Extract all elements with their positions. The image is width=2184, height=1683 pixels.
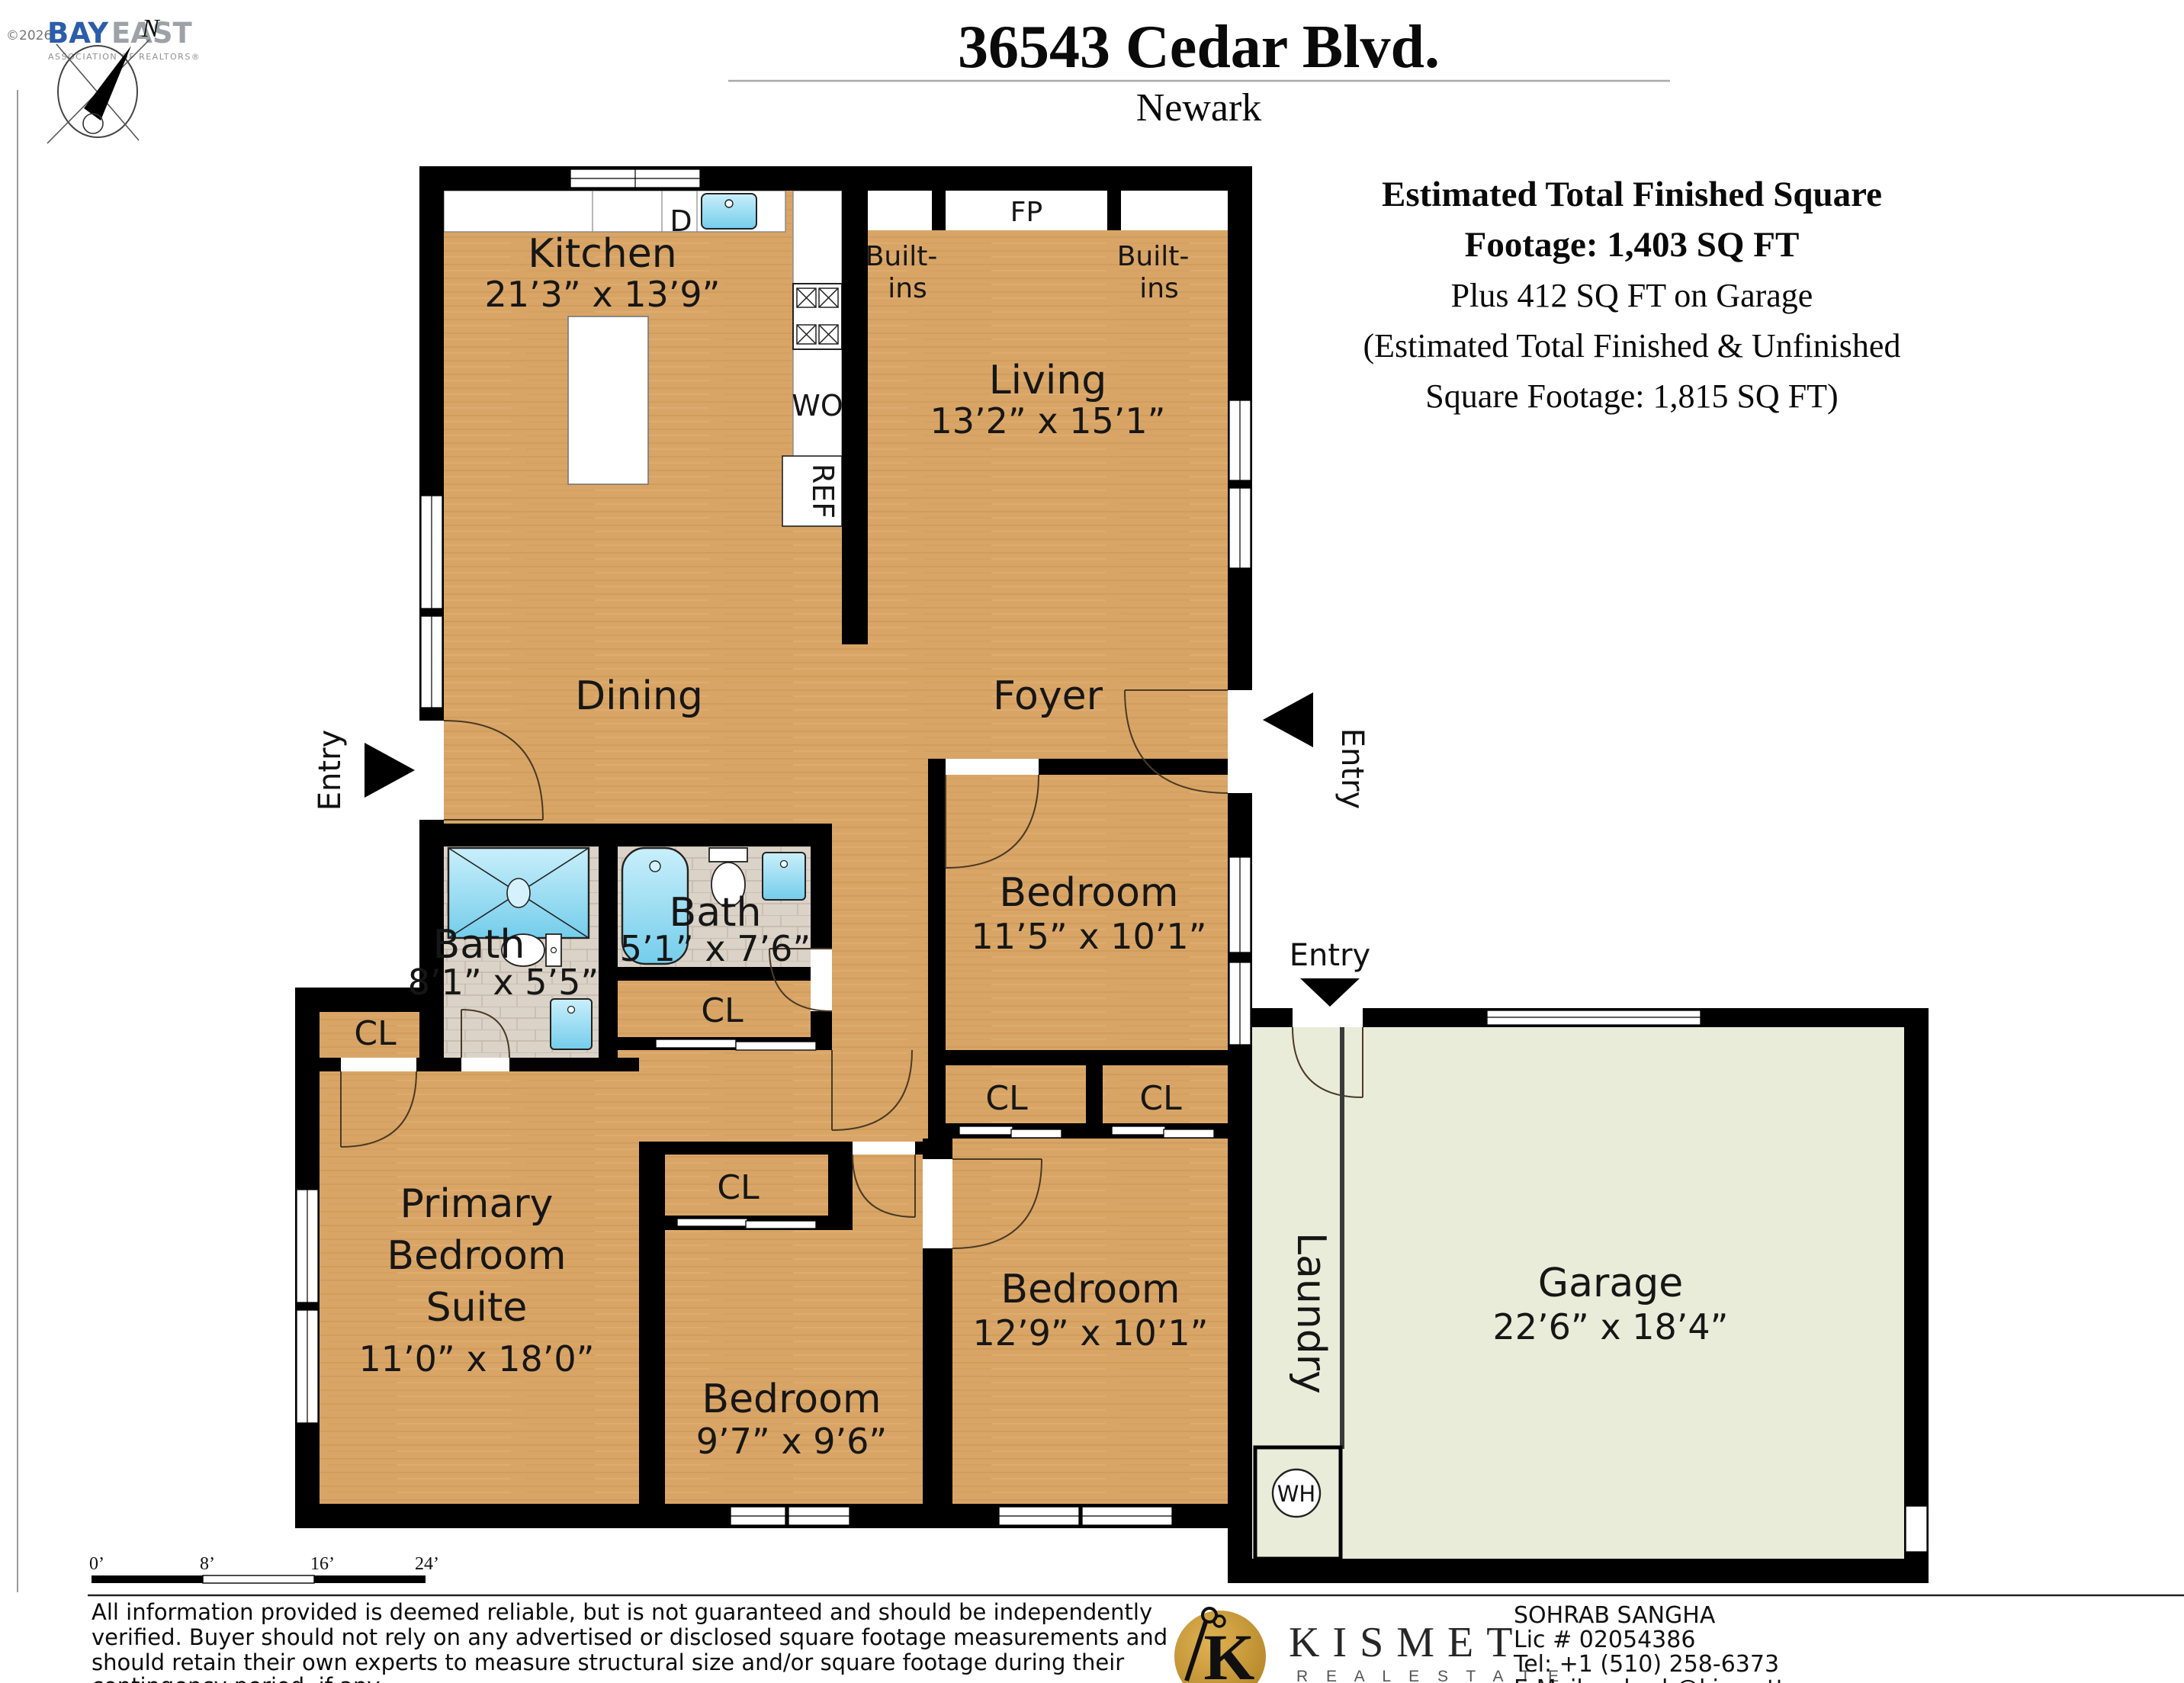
dishwasher-label: D <box>670 204 692 238</box>
kismet-brand-name: KISMET <box>1289 1619 1525 1666</box>
kitchen-dims: 21’3” x 13’9” <box>485 274 721 315</box>
wall-oven-label: WO <box>792 389 843 422</box>
scale-tick-24: 24’ <box>415 1554 439 1574</box>
builtins-left-line2: ins <box>888 273 927 304</box>
page-title: 36543 Cedar Blvd. <box>958 14 1440 81</box>
garage-dims: 22’6” x 18’4” <box>1493 1306 1729 1347</box>
closet-label-bedroom3-right: CL <box>1139 1079 1182 1118</box>
agent-phone: Tel: +1 (510) 258-6373 <box>1513 1651 1779 1678</box>
agent-contact: SOHRAB SANGHA Lic # 02054386 Tel: +1 (51… <box>1513 1602 1891 1683</box>
primary-bath-label: Bath <box>433 922 525 968</box>
sink-icon-primary-bath <box>551 999 592 1049</box>
closet-label-bedroom3-left: CL <box>985 1079 1028 1118</box>
primary-bath-dims: 8’1” x 5’5” <box>408 962 599 1003</box>
stove-icon <box>793 284 842 349</box>
scale-tick-8: 8’ <box>200 1554 215 1574</box>
hall-bath-dims: 5’1” x 7’6” <box>620 928 811 969</box>
summary-line-4: (Estimated Total Finished & Unfinished <box>1363 327 1901 365</box>
builtins-left-line1: Built- <box>866 241 938 272</box>
primary-suite-label-1: Primary <box>400 1181 554 1227</box>
agent-name: SOHRAB SANGHA <box>1514 1602 1716 1629</box>
summary-line-1: Estimated Total Finished Square <box>1382 175 1882 214</box>
bedroom2-label: Bedroom <box>702 1376 881 1422</box>
closet-label-bedroom2: CL <box>717 1168 760 1207</box>
garage-label: Garage <box>1538 1261 1683 1306</box>
title-block: 36543 Cedar Blvd. Newark <box>728 14 1670 130</box>
primary-suite-label-2: Bedroom <box>387 1233 566 1279</box>
kitchen-island <box>568 316 648 484</box>
floorplan-page: ©2026 BAY EAST ASSOCIATION OF REALTORS® … <box>0 0 2184 1683</box>
summary-line-3: Plus 412 SQ FT on Garage <box>1451 277 1813 314</box>
page-subtitle-city: Newark <box>1136 86 1262 130</box>
disclaimer-line-2: verified. Buyer should not rely on any a… <box>92 1624 1167 1650</box>
builtin-niche-right <box>1121 191 1228 230</box>
disclaimer-line-1: All information provided is deemed relia… <box>92 1599 1152 1625</box>
scale-tick-0: 0’ <box>89 1554 104 1574</box>
dining-label: Dining <box>575 673 703 719</box>
refrigerator-label: REF <box>806 464 840 519</box>
agent-email: E-Mail: sohrab@kismetteam.com <box>1514 1675 1891 1683</box>
builtins-right-line1: Built- <box>1117 241 1190 272</box>
kitchen-label: Kitchen <box>528 231 676 277</box>
foyer-label: Foyer <box>993 673 1103 719</box>
bedroom3-label: Bedroom <box>1000 1267 1180 1312</box>
laundry-divider-wall <box>1340 1027 1344 1449</box>
closet-label-hall: CL <box>701 991 744 1030</box>
entry-label-foyer: Entry <box>1334 728 1370 809</box>
disclaimer-line-3: should retain their own experts to measu… <box>92 1649 1124 1675</box>
sink-icon-hall-bath <box>763 853 805 900</box>
primary-suite-dims: 11’0” x 18’0” <box>359 1338 595 1379</box>
disclaimer-line-4: contingency period, if any. <box>92 1673 384 1683</box>
entry-label-left: Entry <box>313 730 348 811</box>
builtins-right-line2: ins <box>1139 273 1179 304</box>
scale-tick-16: 16’ <box>310 1554 335 1574</box>
kismet-logo: K KISMET R E A L E S T A T E <box>1174 1608 1566 1683</box>
bedroom2-dims: 9’7” x 9’6” <box>696 1421 887 1462</box>
copyright-text: ©2026 <box>6 28 52 43</box>
kitchen-sink-faucet <box>725 200 733 207</box>
builtin-niche-left <box>868 191 932 230</box>
fireplace-label: FP <box>1010 197 1042 228</box>
primary-suite-label-3: Suite <box>426 1285 528 1331</box>
bayeast-logo: ©2026 BAY EAST ASSOCIATION OF REALTORS® <box>6 17 201 62</box>
entry-arrow-foyer-icon <box>1263 692 1313 747</box>
entry-arrow-garage-icon <box>1300 978 1360 1007</box>
entry-label-garage: Entry <box>1290 938 1370 973</box>
bedroom3-dims: 12’9” x 10’1” <box>973 1312 1209 1354</box>
bedroom1-label: Bedroom <box>999 870 1178 916</box>
square-footage-summary: Estimated Total Finished Square Footage:… <box>1363 175 1901 415</box>
kitchen-sink <box>702 194 756 229</box>
living-label: Living <box>989 358 1107 403</box>
living-dims: 13’2” x 15’1” <box>930 400 1166 442</box>
bedroom1-dims: 11’5” x 10’1” <box>972 916 1207 957</box>
entry-arrow-left-icon <box>365 743 415 798</box>
laundry-label: Laundry <box>1288 1232 1334 1394</box>
kismet-logo-k: K <box>1204 1620 1255 1683</box>
water-heater-label: WH <box>1277 1481 1315 1507</box>
floorplan-canvas: ©2026 BAY EAST ASSOCIATION OF REALTORS® … <box>0 0 2184 1683</box>
summary-line-2: Footage: 1,403 SQ FT <box>1465 225 1800 265</box>
scale-bar: 0’ 8’ 16’ 24’ <box>89 1554 439 1583</box>
agent-license: Lic # 02054386 <box>1514 1627 1695 1653</box>
closet-label-primary: CL <box>354 1014 397 1053</box>
disclaimer: All information provided is deemed relia… <box>92 1599 1167 1683</box>
compass-north-label: N <box>141 14 161 43</box>
summary-line-5: Square Footage: 1,815 SQ FT) <box>1425 377 1838 415</box>
